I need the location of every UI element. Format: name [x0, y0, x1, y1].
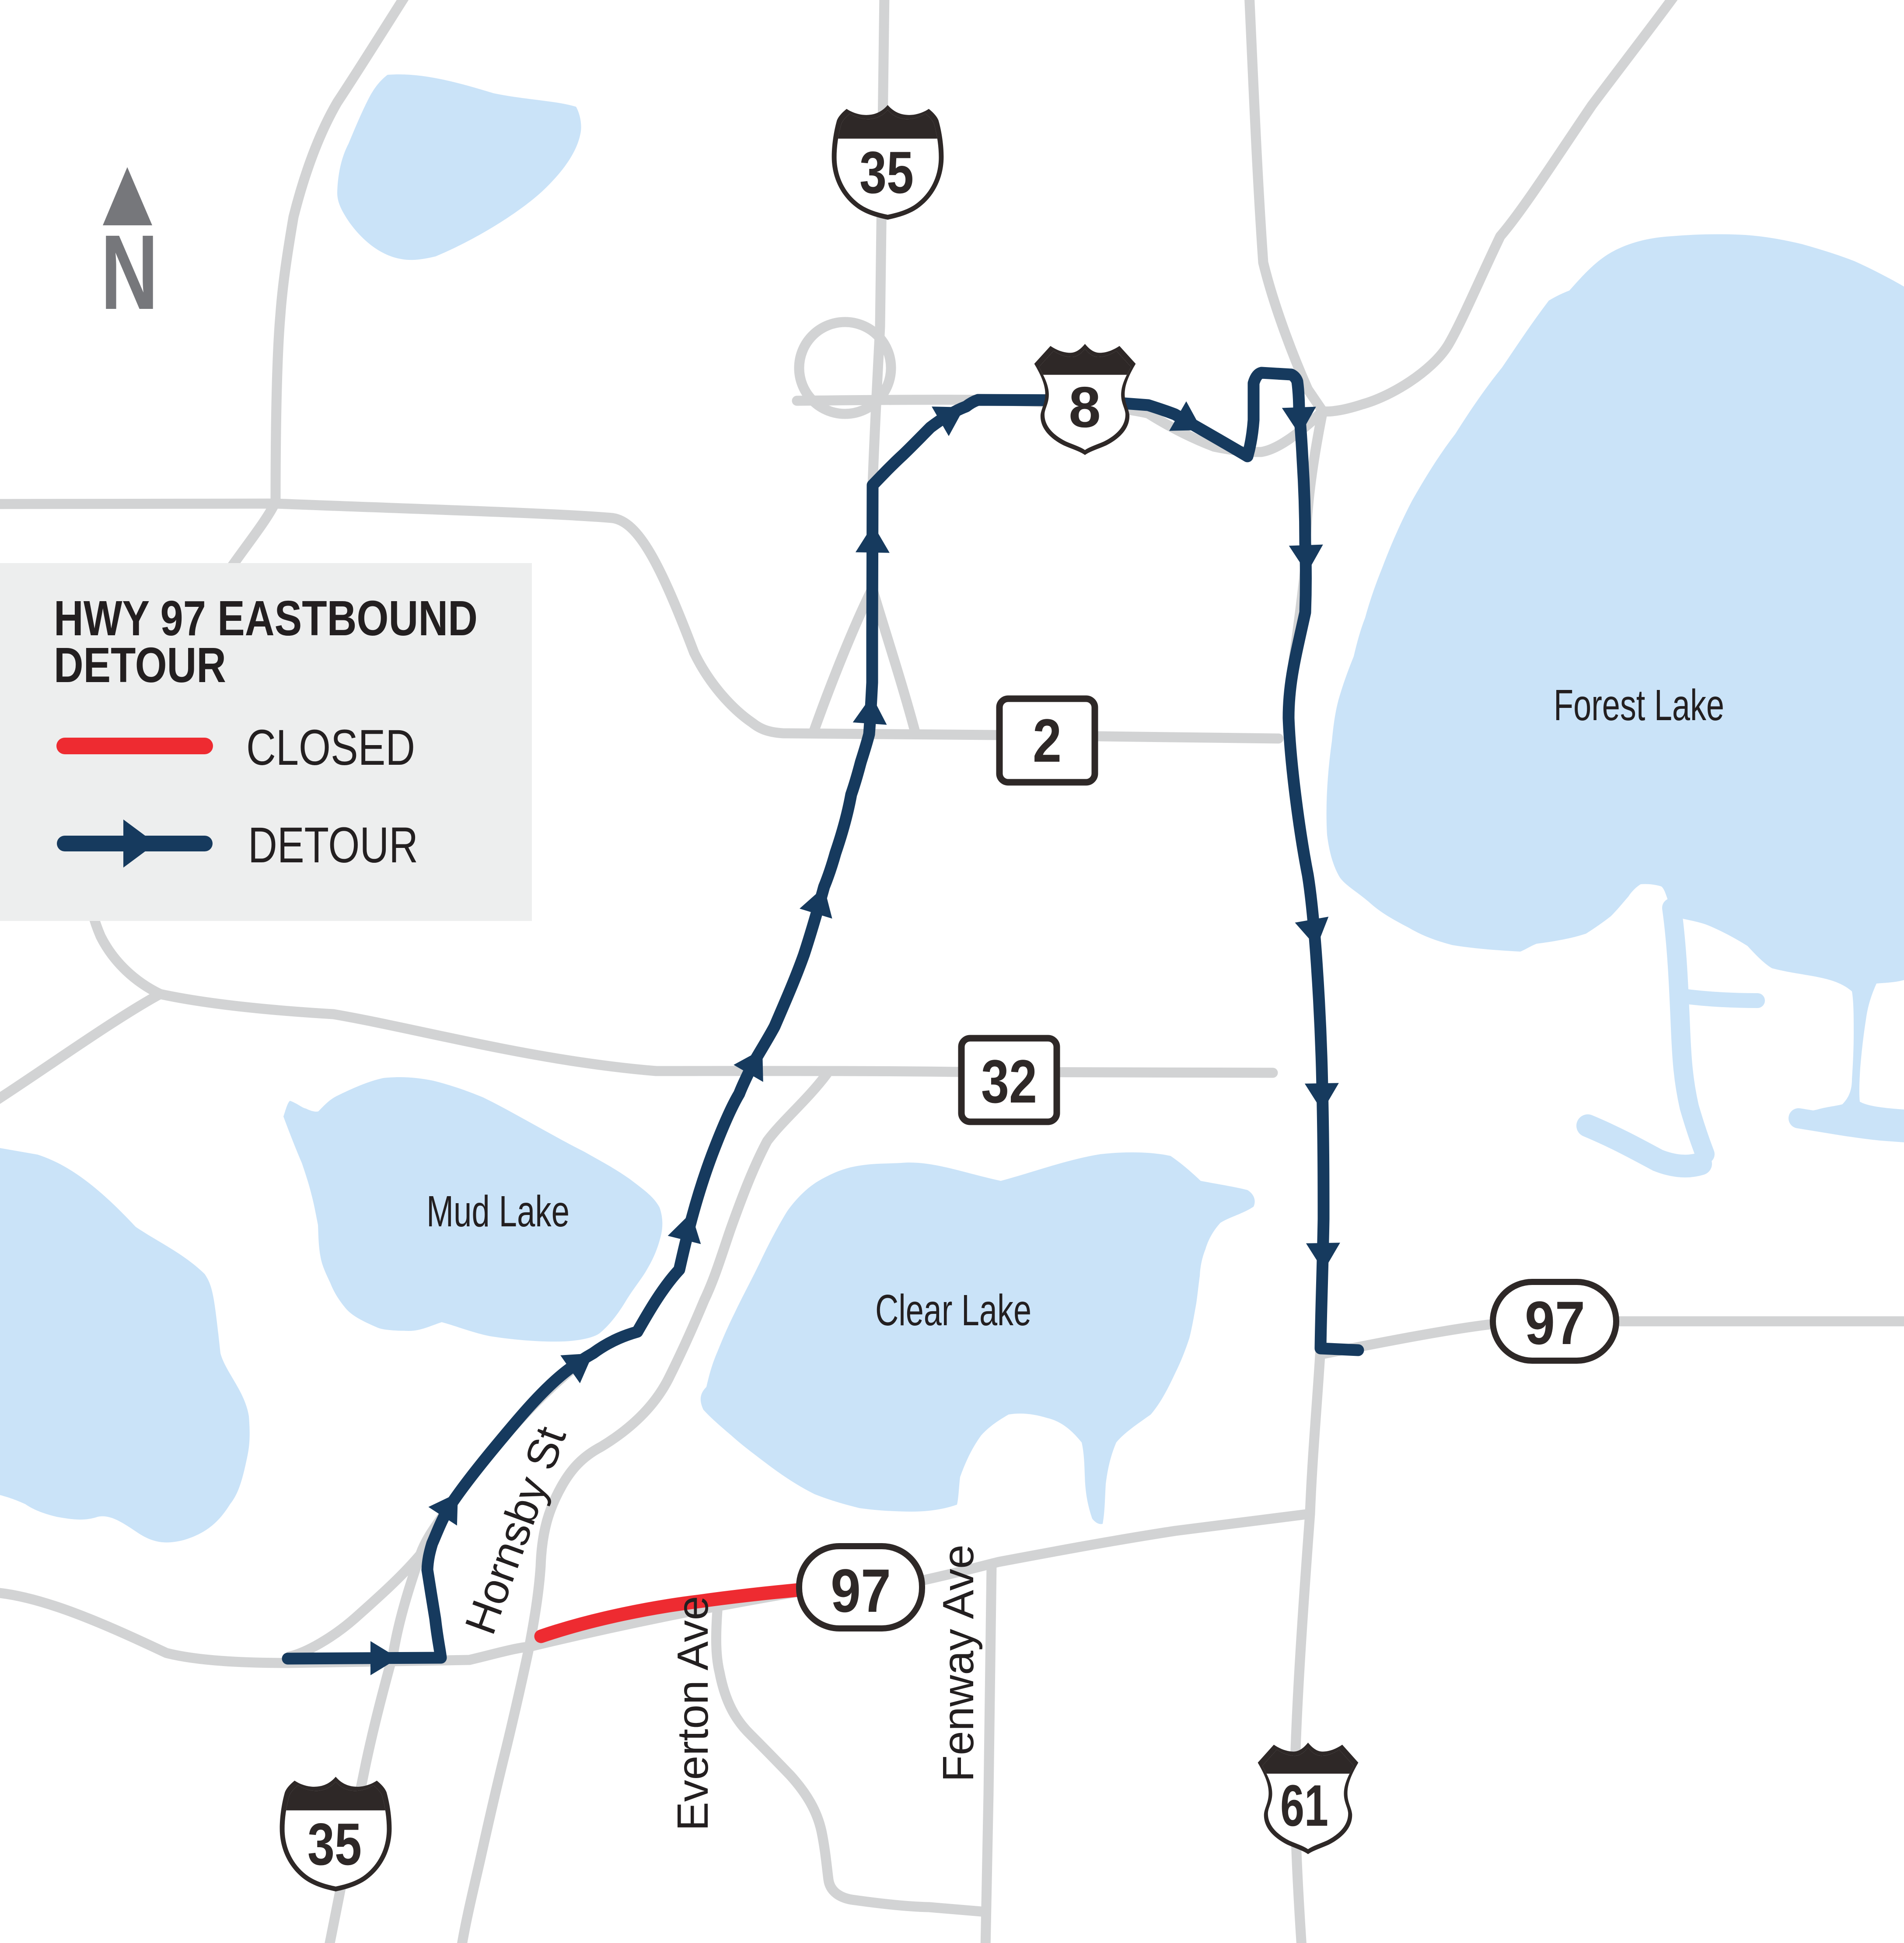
- svg-text:N: N: [101, 213, 158, 332]
- svg-text:61: 61: [1280, 1773, 1328, 1838]
- svg-text:35: 35: [307, 1811, 362, 1877]
- svg-text:DETOUR: DETOUR: [54, 637, 226, 693]
- svg-text:2: 2: [1033, 706, 1062, 775]
- svg-text:DETOUR: DETOUR: [248, 817, 418, 873]
- svg-text:Forest Lake: Forest Lake: [1554, 681, 1724, 730]
- svg-text:CLOSED: CLOSED: [246, 720, 415, 776]
- svg-text:97: 97: [831, 1556, 891, 1625]
- svg-text:8: 8: [1069, 375, 1100, 439]
- svg-text:Fenway Ave: Fenway Ave: [934, 1544, 983, 1782]
- svg-text:Clear Lake: Clear Lake: [875, 1286, 1031, 1335]
- svg-text:Mud Lake: Mud Lake: [426, 1187, 569, 1236]
- svg-text:Everton Ave: Everton Ave: [668, 1596, 717, 1831]
- svg-text:97: 97: [1525, 1288, 1585, 1357]
- svg-text:35: 35: [859, 139, 914, 206]
- svg-text:32: 32: [981, 1047, 1037, 1116]
